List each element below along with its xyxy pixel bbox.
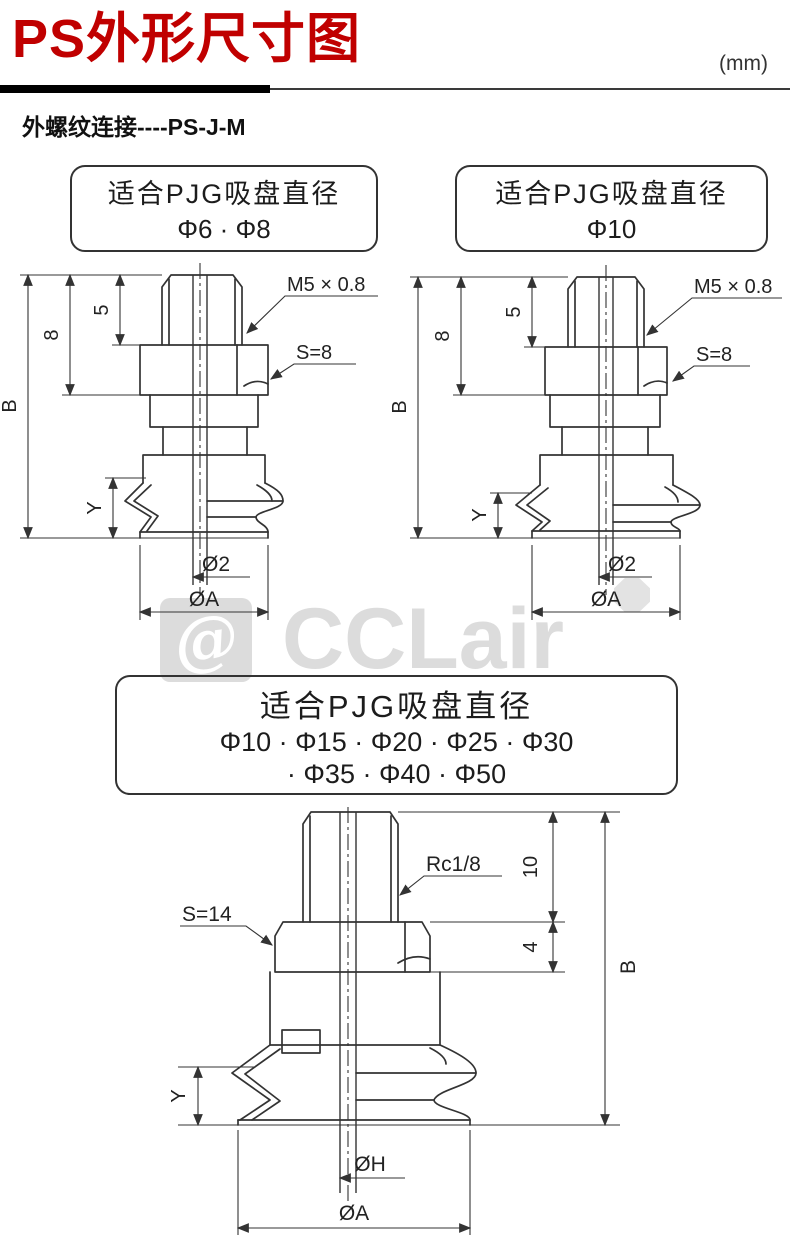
fig3-label-outer: ØA <box>339 1202 369 1225</box>
header-divider-accent <box>0 85 270 93</box>
fig1-label-5: 5 <box>91 304 113 315</box>
fig2-caption-box: 适合PJG吸盘直径 Φ10 <box>455 165 768 252</box>
fig3-dimension-labels: 10 4 B Y Rc1/8 S=14 ØH ØA <box>168 853 640 1225</box>
fig2-caption-sizes: Φ10 <box>587 214 637 245</box>
fig1-caption-sizes: Φ6 · Φ8 <box>177 214 271 245</box>
fig2-dimension-labels: B 8 5 Y M5 × 0.8 S=8 Ø2 ØA <box>389 276 772 611</box>
fig1-label-outer: ØA <box>189 588 219 611</box>
fig1-caption-title: 适合PJG吸盘直径 <box>108 172 341 211</box>
fig1-label-thread: M5 × 0.8 <box>287 274 365 296</box>
fig1-dimension-lines <box>20 275 378 620</box>
fig1-body-outline <box>125 275 283 538</box>
fig3-caption-box: 适合PJG吸盘直径 Φ10 · Φ15 · Φ20 · Φ25 · Φ30 · … <box>115 675 678 795</box>
page: PS外形尺寸图 (mm) 外螺纹连接----PS-J-M @ CCLair 适合… <box>0 0 790 1258</box>
fig2-label-Y: Y <box>469 508 491 521</box>
fig2-label-bore: Ø2 <box>608 553 636 576</box>
fig1-drawing: B 8 5 Y M5 × 0.8 S=8 Ø2 ØA <box>0 255 395 627</box>
fig2-label-B: B <box>389 400 411 413</box>
fig2-label-outer: ØA <box>591 588 621 611</box>
fig1-dimension-labels: B 8 5 Y M5 × 0.8 S=8 Ø2 ØA <box>0 274 365 611</box>
fig2-drawing: B 8 5 Y M5 × 0.8 S=8 Ø2 ØA <box>390 255 790 627</box>
fig3-caption-title: 适合PJG吸盘直径 <box>260 681 533 726</box>
fig3-label-10: 10 <box>520 856 542 878</box>
fig3-caption-sizes-row2: · Φ35 · Φ40 · Φ50 <box>287 759 506 790</box>
fig1-label-Y: Y <box>84 501 106 514</box>
fig3-dimension-lines <box>178 812 620 1235</box>
fig1-label-B: B <box>0 399 21 412</box>
fig3-drawing: 10 4 B Y Rc1/8 S=14 ØH ØA <box>120 805 680 1258</box>
section-subtitle: 外螺纹连接----PS-J-M <box>22 108 246 142</box>
fig3-label-Y: Y <box>168 1089 190 1102</box>
fig3-label-4: 4 <box>520 941 542 952</box>
fig1-label-wrench: S=8 <box>296 342 332 364</box>
fig2-label-thread: M5 × 0.8 <box>694 276 772 298</box>
fig3-label-bore: ØH <box>354 1153 386 1176</box>
fig1-caption-box: 适合PJG吸盘直径 Φ6 · Φ8 <box>70 165 378 252</box>
fig1-label-bore: Ø2 <box>202 553 230 576</box>
fig2-caption-title: 适合PJG吸盘直径 <box>495 172 728 211</box>
fig2-label-8: 8 <box>432 330 454 341</box>
fig2-label-5: 5 <box>503 306 525 317</box>
fig1-label-8: 8 <box>41 329 63 340</box>
page-title: PS外形尺寸图 <box>12 10 361 69</box>
unit-label: (mm) <box>719 52 768 76</box>
fig3-label-thread: Rc1/8 <box>426 853 481 876</box>
fig3-label-B: B <box>617 960 640 974</box>
fig3-label-wrench: S=14 <box>182 903 232 926</box>
fig2-label-wrench: S=8 <box>696 344 732 366</box>
fig2-dimension-lines <box>410 277 782 620</box>
fig3-caption-sizes-row1: Φ10 · Φ15 · Φ20 · Φ25 · Φ30 <box>220 727 574 758</box>
fig2-body-outline <box>516 277 700 538</box>
